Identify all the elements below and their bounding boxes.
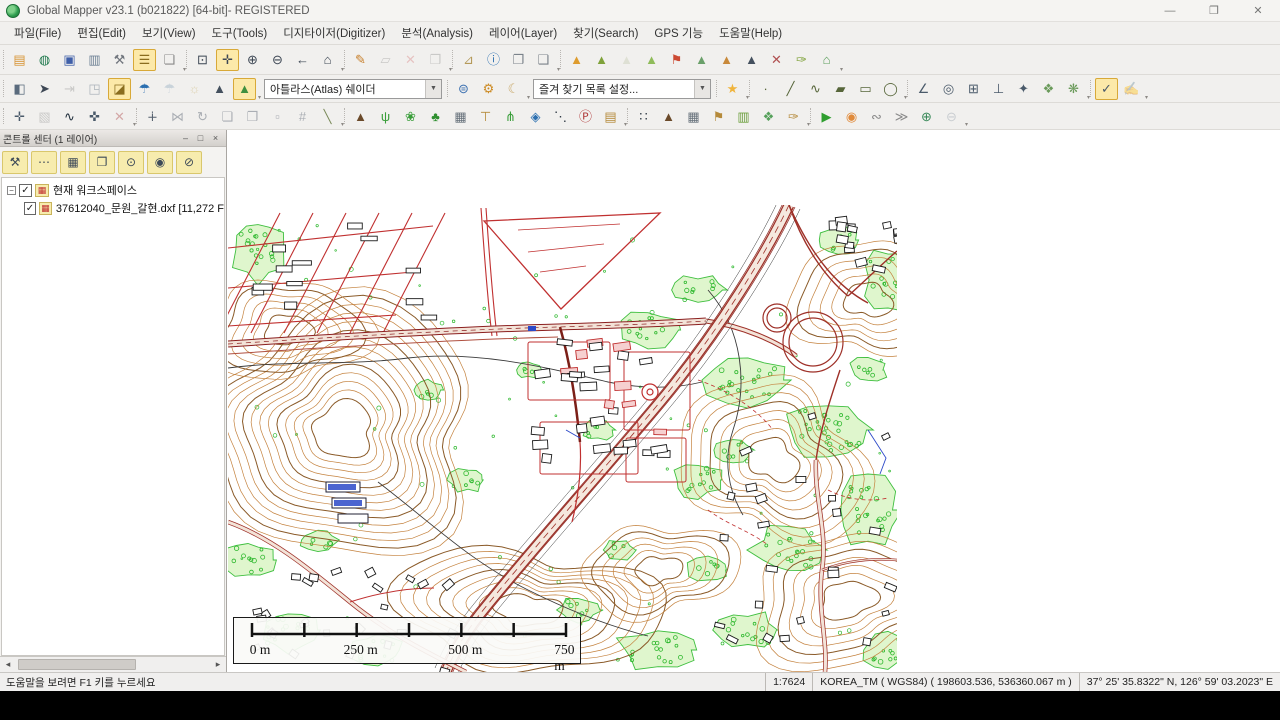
image-rectify-icon: ▧ (38, 110, 50, 123)
symbol-building-icon: ▦ (454, 110, 466, 123)
speed-fast-rabbit-button[interactable]: ≫ (890, 105, 913, 127)
zoom-box-button[interactable]: ⊡ (191, 49, 214, 71)
shader-combo[interactable]: 아틀라스(Atlas) 쉐이더▼ (264, 79, 442, 99)
layer-options-icon: ⚒ (10, 155, 21, 169)
menu-layer[interactable]: 레이어(Layer) (481, 22, 565, 44)
full-view-home-icon: ⌂ (324, 53, 332, 66)
panel-close-button[interactable]: × (208, 133, 223, 143)
swipe-compare-button[interactable]: ◪ (108, 78, 131, 100)
zoom-out-animation-icon: ⊖ (946, 110, 957, 123)
duplicate-layer-icon: ❐ (97, 155, 108, 169)
toolbar-group: ★ (715, 75, 748, 102)
dxf-map-drawing (228, 130, 1280, 672)
scale-label: 250 m (344, 642, 378, 658)
3d-site-model-icon: ⌂ (823, 53, 831, 66)
water-level-rise-button[interactable]: ▲ (690, 49, 713, 71)
show-layer-eye-icon: ◉ (155, 155, 165, 169)
menu-gps[interactable]: GPS 기능 (646, 22, 711, 44)
status-coordinates: 37° 25' 35.8322" N, 126° 59' 03.2023" E (1079, 673, 1280, 691)
attribute-table-button[interactable]: ▦ (60, 151, 86, 174)
zoom-in-animation-button[interactable]: ⊕ (915, 105, 938, 127)
feature-info-button[interactable]: ⓘ (482, 49, 505, 71)
symbol-mountain-icon: ▲ (354, 110, 367, 123)
step-playback-icon: ⇥ (64, 82, 75, 95)
shift-vertices-icon: ✜ (89, 110, 100, 123)
path-profile-button[interactable]: ▲ (590, 49, 613, 71)
symbol-parking-icon: Ⓟ (579, 110, 592, 123)
multi-select-icon: ❒ (430, 53, 442, 66)
contour-generation-icon: ▲ (720, 53, 733, 66)
scrollbar-thumb[interactable] (18, 659, 136, 670)
layer-type-icon: ▦ (39, 202, 52, 215)
label-mountain-icon: ▲ (662, 110, 675, 123)
symbol-parking-button[interactable]: Ⓟ (574, 105, 597, 127)
toolbar-row-3: ✛▧∿✜✕∔⋈↻❏❐▫#╲▲ψ❀♣▦⊤⋔◈⋱Ⓟ▤∷▲▦⚑▥❖✑▶◉∾≫⊕⊖ (0, 103, 1280, 130)
map-view-button[interactable]: ▥ (83, 49, 106, 71)
snap-to-grid-button[interactable]: # (291, 105, 314, 127)
symbol-dotted-line-button[interactable]: ⋱ (549, 105, 572, 127)
save-workspace-icon: ▣ (63, 53, 75, 66)
digitizer-edit-icon: ✎ (355, 53, 366, 66)
toolbar-group: ∷▲▦⚑▥❖✑ (626, 103, 809, 129)
map-canvas[interactable]: 0 m250 m500 m750 m (228, 130, 1280, 672)
step-playback-button[interactable]: ⇥ (58, 78, 81, 100)
status-scale: 1:7624 (765, 673, 812, 691)
terrain-paint-button[interactable]: ✑ (790, 49, 813, 71)
clear-terrain-icon: ✕ (771, 53, 782, 66)
create-rectangle-feature-button[interactable]: ▭ (854, 78, 877, 100)
feature-info-icon: ⓘ (487, 53, 500, 66)
letterbox-strip (0, 691, 1280, 720)
zoom-in-animation-icon: ⊕ (921, 110, 932, 123)
snap-to-grid-icon: # (299, 110, 306, 123)
menu-tools[interactable]: 도구(Tools) (204, 22, 276, 44)
rotate-feature-icon: ↻ (197, 110, 208, 123)
panel-minimize-button[interactable]: – (178, 133, 193, 143)
atlas-shader-mountain-button[interactable]: ▲ (233, 78, 256, 100)
measure-icon: ⊿ (463, 53, 474, 66)
stop-animation-icon: ◉ (846, 110, 857, 123)
paint-brush-button[interactable]: ✑ (782, 105, 805, 127)
toolbar-row-1: ▤◍▣▥⚒☰❏⊡✛⊕⊖←⌂✎▱✕❒⊿ⓘ❐❑▲▲▲▲⚑▲▲▲✕✑⌂ (0, 45, 1280, 75)
scale-label: 0 m (250, 642, 271, 658)
hide-layer-eye-button[interactable]: ⊘ (176, 151, 202, 174)
hill-shading-button[interactable]: ▲ (208, 78, 231, 100)
menu-analysis[interactable]: 분석(Analysis) (393, 22, 481, 44)
speed-fast-rabbit-icon: ≫ (895, 110, 909, 123)
toolbar-group: ⊜⚙☾ (446, 75, 529, 102)
rain-simulation-button[interactable]: ☂ (158, 78, 181, 100)
main-area: 콘트롤 센터 (1 레이어) – □ × ⚒⋯▦❐⊙◉⊘ −✓▦현재 워크스페이… (0, 130, 1280, 672)
favorite-views-star-icon: ★ (727, 82, 739, 95)
zoom-out-animation-button[interactable]: ⊖ (940, 105, 963, 127)
menu-edit[interactable]: 편집(Edit) (69, 22, 134, 44)
billboard-panel-button[interactable]: ▥ (732, 105, 755, 127)
layer-tree-item[interactable]: −✓▦현재 워크스페이스 (4, 181, 224, 199)
shift-vertices-button[interactable]: ✜ (83, 105, 106, 127)
sun-shading-icon: ☼ (189, 82, 201, 95)
gps-orientation-button[interactable]: ➤ (33, 78, 56, 100)
picture-info-button[interactable]: ❐ (507, 49, 530, 71)
grid-create-button[interactable]: ⊞ (962, 78, 985, 100)
status-projection: KOREA_TM ( WGS84) ( 198603.536, 536360.0… (812, 673, 1079, 691)
delete-vertex-button[interactable]: ✕ (108, 105, 131, 127)
hide-layer-eye-icon: ⊘ (184, 155, 194, 169)
symbol-dotted-line-icon: ⋱ (554, 110, 567, 123)
flag-pole-button[interactable]: ⚑ (707, 105, 730, 127)
layer-metadata-button[interactable]: ⋯ (31, 151, 57, 174)
terrain-paint-icon: ✑ (796, 53, 807, 66)
delete-vertex-icon: ✕ (114, 110, 125, 123)
gps-orientation-icon: ➤ (39, 82, 50, 95)
global-mapper-window: Global Mapper v23.1 (b021822) [64-bit]- … (0, 0, 1280, 720)
create-area-feature-icon: ▰ (836, 82, 846, 95)
view-shed-flag-button[interactable]: ⚑ (665, 49, 688, 71)
3d-path-view-icon: ◳ (88, 82, 100, 95)
title-bar: Global Mapper v23.1 (b021822) [64-bit]- … (0, 0, 1280, 22)
toolbar-group: ▶◉∾≫⊕⊖ (809, 103, 967, 129)
create-point-feature-icon: ∙ (764, 82, 768, 95)
create-rectangle-feature-icon: ▭ (859, 82, 871, 95)
create-freehand-feature-icon: ∿ (810, 82, 821, 95)
multi-select-button[interactable]: ❒ (424, 49, 447, 71)
draw-split-line-button[interactable]: ╲ (316, 105, 339, 127)
tree-expander-icon[interactable]: − (7, 186, 16, 195)
draw-split-line-icon: ╲ (324, 110, 332, 123)
shader-combo-dropdown-arrow-icon[interactable]: ▼ (425, 80, 441, 98)
label-mountain-button[interactable]: ▲ (657, 105, 680, 127)
layer-checkbox[interactable]: ✓ (19, 184, 32, 197)
scale-bar: 0 m250 m500 m750 m (233, 617, 581, 664)
menu-file[interactable]: 파일(File) (6, 22, 69, 44)
symbol-fence-icon: ▤ (604, 110, 616, 123)
symbol-water-drop-button[interactable]: ◈ (524, 105, 547, 127)
shader-options-gear-icon: ⚙ (483, 82, 495, 95)
line-of-sight-button[interactable]: ▲ (615, 49, 638, 71)
favorites-combo-dropdown-arrow-icon[interactable]: ▼ (694, 80, 710, 98)
symbol-grass-icon: ψ (381, 110, 390, 123)
range-rings-icon: ◎ (943, 82, 954, 95)
toolbar-group: ▲ψ❀♣▦⊤⋔◈⋱Ⓟ▤ (343, 103, 626, 129)
delete-feature-button[interactable]: ✕ (399, 49, 422, 71)
toolbar-group: ▤◍▣▥⚒☰❏ (2, 45, 185, 74)
menu-digitizer[interactable]: 디지타이저(Digitizer) (275, 22, 393, 44)
scale-label: 500 m (448, 642, 482, 658)
create-point-feature-button[interactable]: ∙ (754, 78, 777, 100)
layer-type-icon: ▦ (35, 184, 49, 197)
clear-terrain-button[interactable]: ✕ (765, 49, 788, 71)
grid-create-icon: ⊞ (968, 82, 979, 95)
zoom-out-icon: ⊖ (272, 53, 283, 66)
layer-label: 37612040_문원_갈현.dxf [11,272 F (56, 200, 224, 216)
day-night-toggle-moon-icon: ☾ (508, 82, 520, 95)
layer-label: 현재 워크스페이스 (53, 182, 137, 198)
symbol-building-button[interactable]: ▦ (449, 105, 472, 127)
measure-button[interactable]: ⊿ (457, 49, 480, 71)
line-of-sight-icon: ▲ (620, 53, 633, 66)
symbol-palm-icon: ⋔ (505, 110, 516, 123)
contour-generation-button[interactable]: ▲ (715, 49, 738, 71)
control-center-titlebar[interactable]: 콘트롤 센터 (1 레이어) – □ × (0, 130, 226, 147)
restore-button[interactable]: ❐ (1192, 0, 1236, 21)
digitizer-edit-button[interactable]: ✎ (349, 49, 372, 71)
layer-options-button[interactable]: ⚒ (2, 151, 28, 174)
scale-labels: 0 m250 m500 m750 m (234, 642, 580, 662)
move-feature-icon: ✛ (14, 110, 25, 123)
previous-view-button[interactable]: ← (291, 49, 314, 71)
texture-fill-icon: ❖ (1043, 82, 1055, 95)
label-building-icon: ▦ (687, 110, 699, 123)
toolbar-group: ✓✍ (1089, 75, 1147, 102)
online-sources-globe-icon: ⊜ (458, 82, 469, 95)
create-freehand-feature-button[interactable]: ∿ (804, 78, 827, 100)
panel-restore-button[interactable]: □ (193, 133, 208, 143)
label-point-icon: ∷ (639, 110, 647, 123)
open-file-button[interactable]: ▤ (8, 49, 31, 71)
elevation-post-icon: ⊥ (993, 82, 1004, 95)
layer-checkbox[interactable]: ✓ (24, 202, 36, 215)
signature-stamp-icon: ✍ (1123, 82, 1139, 95)
control-center-title: 콘트롤 센터 (1 레이어) (3, 131, 178, 146)
move-feature-button[interactable]: ✛ (8, 105, 31, 127)
symbol-shrub-icon: ❀ (405, 110, 416, 123)
open-online-data-button[interactable]: ◍ (33, 49, 56, 71)
play-animation-button[interactable]: ▶ (815, 105, 838, 127)
speed-slow-turtle-icon: ∾ (871, 110, 882, 123)
terrain-shading-icon: ▲ (745, 53, 758, 66)
show-3d-view-icon: ▲ (570, 53, 583, 66)
symbol-streetlamp-button[interactable]: ⊤ (474, 105, 497, 127)
symbol-tree-button[interactable]: ♣ (424, 105, 447, 127)
attribute-editor-button[interactable]: ❑ (532, 49, 555, 71)
online-sources-globe-button[interactable]: ⊜ (452, 78, 475, 100)
favorites-combo[interactable]: 즐겨 찾기 목록 설정...▼ (533, 79, 711, 99)
watershed-rain-button[interactable]: ☂ (133, 78, 156, 100)
configuration-icon: ⚒ (114, 53, 126, 66)
label-point-button[interactable]: ∷ (632, 105, 655, 127)
close-button[interactable]: ✕ (1236, 0, 1280, 21)
copy-feature-button[interactable]: ❏ (216, 105, 239, 127)
toolbar-group: ◧➤⇥◳◪☂☂☼▲▲ (2, 75, 260, 102)
zoom-to-layer-icon: ⊙ (126, 155, 136, 169)
spot-symbol-icon: ✦ (1018, 82, 1029, 95)
symbol-mountain-button[interactable]: ▲ (349, 105, 372, 127)
billboard-panel-icon: ▥ (737, 110, 749, 123)
sun-shading-button[interactable]: ☼ (183, 78, 206, 100)
layer-tree-item[interactable]: ✓▦37612040_문원_갈현.dxf [11,272 F (4, 199, 224, 217)
toolbar-group: ∙╱∿▰▭◯ (748, 75, 906, 102)
symbol-shrub-button[interactable]: ❀ (399, 105, 422, 127)
offset-feature-icon: ❐ (247, 110, 259, 123)
menu-bar: 파일(File)편집(Edit)보기(View)도구(Tools)디지타이저(D… (0, 22, 1280, 45)
duplicate-feature-button[interactable]: ▫ (266, 105, 289, 127)
toolbar-group: ✛▧∿✜✕ (2, 103, 135, 129)
copy-feature-icon: ❏ (222, 110, 234, 123)
label-building-button[interactable]: ▦ (682, 105, 705, 127)
watershed-icon: ▲ (645, 53, 658, 66)
toolbar-group: ▲▲▲▲⚑▲▲▲✕✑⌂ (559, 45, 842, 74)
open-online-data-icon: ◍ (39, 53, 50, 66)
toolbar-row-2: ◧➤⇥◳◪☂☂☼▲▲아틀라스(Atlas) 쉐이더▼⊜⚙☾즐겨 찾기 목록 설정… (0, 75, 1280, 103)
toolbar-group: ∠◎⊞⊥✦❖❋ (906, 75, 1089, 102)
toolbar-group: ⊡✛⊕⊖←⌂ (185, 45, 343, 74)
add-vertex-button[interactable]: ∔ (141, 105, 164, 127)
scroll-left-arrow-icon[interactable]: ◂ (0, 657, 16, 672)
texture-fill-button[interactable]: ❖ (1037, 78, 1060, 100)
picture-info-icon: ❐ (513, 53, 525, 66)
paint-brush-icon: ✑ (788, 110, 799, 123)
edit-geometry-icon: ▱ (381, 53, 391, 66)
menu-search[interactable]: 찾기(Search) (565, 22, 646, 44)
open-file-icon: ▤ (13, 53, 25, 66)
play-animation-icon: ▶ (822, 110, 832, 123)
duplicate-feature-icon: ▫ (275, 110, 280, 123)
speed-slow-turtle-button[interactable]: ∾ (865, 105, 888, 127)
overlay-control-center-button[interactable]: ❏ (158, 49, 181, 71)
symbol-water-drop-icon: ◈ (531, 110, 541, 123)
create-line-feature-icon: ╱ (787, 82, 795, 95)
toolbar-group: ∔⋈↻❏❐▫#╲ (135, 103, 343, 129)
favorites-combo-value: 즐겨 찾기 목록 설정... (534, 81, 694, 97)
join-lines-button[interactable]: ⋈ (166, 105, 189, 127)
show-3d-view-button[interactable]: ▲ (565, 49, 588, 71)
water-level-rise-icon: ▲ (695, 53, 708, 66)
watershed-button[interactable]: ▲ (640, 49, 663, 71)
rotate-feature-button[interactable]: ↻ (191, 105, 214, 127)
zoom-to-layer-button[interactable]: ⊙ (118, 151, 144, 174)
swipe-compare-icon: ◪ (113, 82, 125, 95)
status-bar: 도움말을 보려면 F1 키를 누르세요 1:7624 KOREA_TM ( WG… (0, 672, 1280, 691)
signature-stamp-button[interactable]: ✍ (1120, 78, 1143, 100)
menu-view[interactable]: 보기(View) (134, 22, 204, 44)
create-ellipse-feature-button[interactable]: ◯ (879, 78, 902, 100)
previous-view-icon: ← (296, 53, 309, 66)
scale-ruler (234, 618, 578, 642)
favorite-views-star-button[interactable]: ★ (721, 78, 744, 100)
digitizer-select-check-button[interactable]: ✓ (1095, 78, 1118, 100)
merge-areas-button[interactable]: ❋ (1062, 78, 1085, 100)
symbol-grass-button[interactable]: ψ (374, 105, 397, 127)
minimize-button[interactable]: — (1148, 0, 1192, 21)
toolbar-group: ✎▱✕❒ (343, 45, 451, 74)
join-lines-icon: ⋈ (171, 110, 184, 123)
create-ellipse-feature-icon: ◯ (883, 82, 898, 95)
texture-puzzle-icon: ❖ (763, 110, 775, 123)
layer-metadata-icon: ⋯ (38, 155, 50, 169)
menu-help[interactable]: 도움말(Help) (711, 22, 790, 44)
angle-measure-create-button[interactable]: ∠ (912, 78, 935, 100)
create-line-feature-button[interactable]: ╱ (779, 78, 802, 100)
duplicate-layer-button[interactable]: ❐ (89, 151, 115, 174)
symbol-tree-icon: ♣ (431, 110, 440, 123)
image-rectify-button[interactable]: ▧ (33, 105, 56, 127)
split-screen-icon: ◧ (13, 82, 25, 95)
save-workspace-button[interactable]: ▣ (58, 49, 81, 71)
terrain-shading-button[interactable]: ▲ (740, 49, 763, 71)
overlay-control-center-icon: ❏ (164, 53, 176, 66)
zoom-out-button[interactable]: ⊖ (266, 49, 289, 71)
texture-puzzle-button[interactable]: ❖ (757, 105, 780, 127)
offset-feature-button[interactable]: ❐ (241, 105, 264, 127)
attribute-editor-icon: ❑ (538, 53, 550, 66)
control-center-button[interactable]: ☰ (133, 49, 156, 71)
symbol-streetlamp-icon: ⊤ (480, 110, 491, 123)
scroll-right-arrow-icon[interactable]: ▸ (210, 657, 226, 672)
range-rings-button[interactable]: ◎ (937, 78, 960, 100)
full-view-home-button[interactable]: ⌂ (316, 49, 339, 71)
split-screen-button[interactable]: ◧ (8, 78, 31, 100)
merge-areas-icon: ❋ (1068, 82, 1079, 95)
control-center-panel: 콘트롤 센터 (1 레이어) – □ × ⚒⋯▦❐⊙◉⊘ −✓▦현재 워크스페이… (0, 130, 227, 672)
map-view-icon: ▥ (88, 53, 100, 66)
view-shed-flag-icon: ⚑ (671, 53, 683, 66)
show-layer-eye-button[interactable]: ◉ (147, 151, 173, 174)
status-help-text: 도움말을 보려면 F1 키를 누르세요 (0, 675, 765, 690)
configuration-button[interactable]: ⚒ (108, 49, 131, 71)
layer-tree: −✓▦현재 워크스페이스✓▦37612040_문원_갈현.dxf [11,272… (1, 177, 225, 656)
pan-grab-button[interactable]: ✛ (216, 49, 239, 71)
zoom-box-icon: ⊡ (197, 53, 208, 66)
spot-symbol-button[interactable]: ✦ (1012, 78, 1035, 100)
zoom-in-button[interactable]: ⊕ (241, 49, 264, 71)
control-center-toolbar: ⚒⋯▦❐⊙◉⊘ (0, 147, 226, 177)
create-area-feature-button[interactable]: ▰ (829, 78, 852, 100)
hill-shading-icon: ▲ (213, 82, 226, 95)
add-vertex-icon: ∔ (147, 110, 158, 123)
path-profile-icon: ▲ (595, 53, 608, 66)
atlas-shader-mountain-icon: ▲ (238, 82, 251, 95)
3d-site-model-button[interactable]: ⌂ (815, 49, 838, 71)
zoom-in-icon: ⊕ (247, 53, 258, 66)
elevation-post-button[interactable]: ⊥ (987, 78, 1010, 100)
rain-simulation-icon: ☂ (164, 82, 176, 95)
watershed-rain-icon: ☂ (139, 82, 151, 95)
window-controls: — ❐ ✕ (1148, 0, 1280, 21)
angle-measure-create-icon: ∠ (918, 82, 930, 95)
pan-grab-icon: ✛ (222, 53, 233, 66)
toolbar-group: ⊿ⓘ❐❑ (451, 45, 559, 74)
3d-path-view-button[interactable]: ◳ (83, 78, 106, 100)
attribute-table-icon: ▦ (67, 155, 78, 169)
flag-pole-icon: ⚑ (713, 110, 725, 123)
window-title: Global Mapper v23.1 (b021822) [64-bit]- … (27, 5, 310, 17)
delete-feature-icon: ✕ (405, 53, 416, 66)
freehand-scribble-icon: ∿ (64, 110, 75, 123)
shader-combo-value: 아틀라스(Atlas) 쉐이더 (265, 81, 425, 97)
edit-geometry-button[interactable]: ▱ (374, 49, 397, 71)
panel-horizontal-scrollbar[interactable]: ◂ ▸ (0, 656, 226, 672)
freehand-scribble-button[interactable]: ∿ (58, 105, 81, 127)
shader-options-gear-button[interactable]: ⚙ (477, 78, 500, 100)
day-night-toggle-moon-button[interactable]: ☾ (502, 78, 525, 100)
control-center-icon: ☰ (139, 53, 151, 66)
digitizer-select-check-icon: ✓ (1101, 82, 1112, 95)
symbol-fence-button[interactable]: ▤ (599, 105, 622, 127)
app-logo-globe-icon (6, 4, 20, 18)
scale-label: 750 m (554, 642, 574, 672)
symbol-palm-button[interactable]: ⋔ (499, 105, 522, 127)
stop-animation-button[interactable]: ◉ (840, 105, 863, 127)
